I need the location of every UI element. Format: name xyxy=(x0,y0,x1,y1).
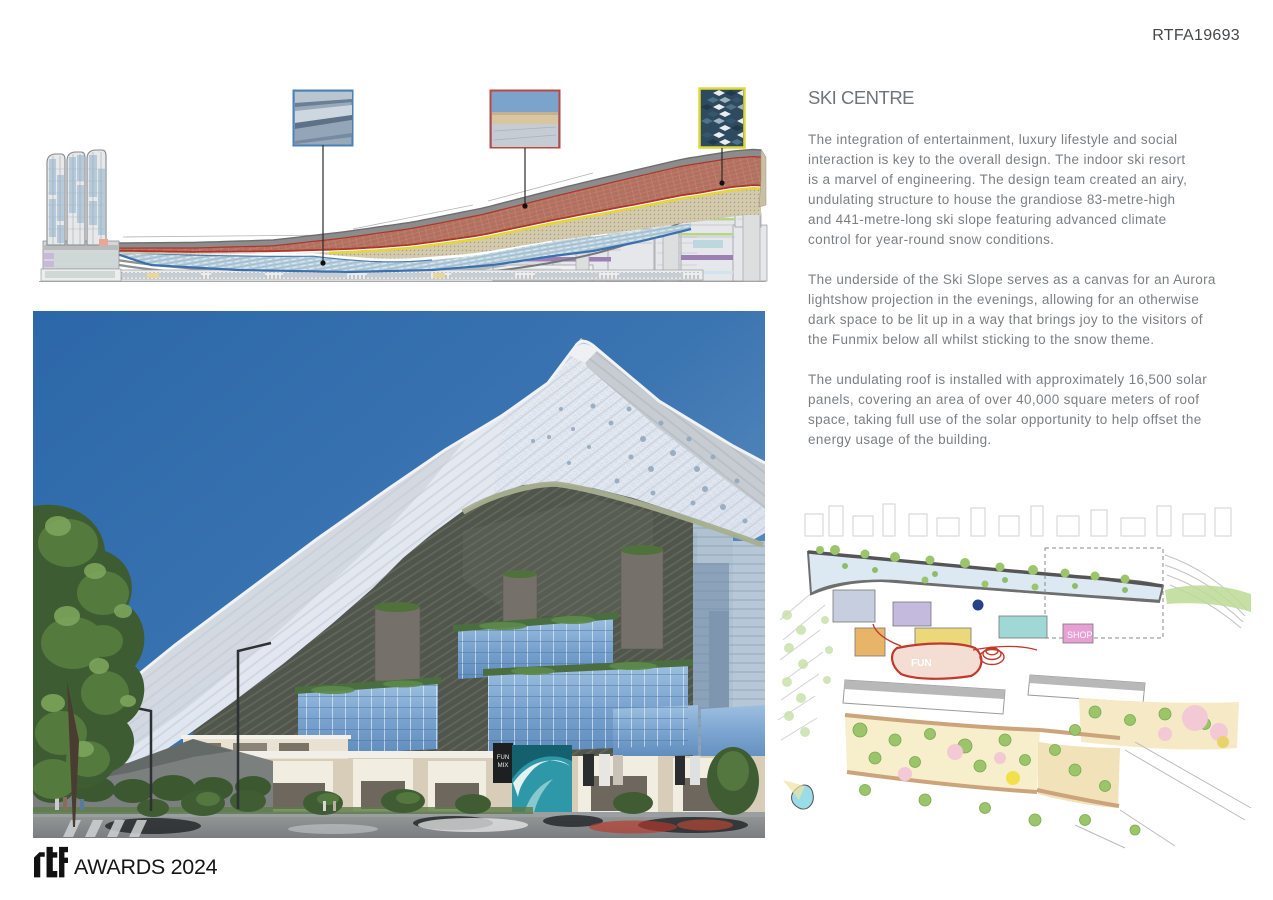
svg-text:MIX: MIX xyxy=(498,763,509,769)
svg-text:FUN: FUN xyxy=(497,755,509,761)
svg-text:SHOP: SHOP xyxy=(1067,630,1093,640)
svg-text:FUN: FUN xyxy=(911,658,932,669)
